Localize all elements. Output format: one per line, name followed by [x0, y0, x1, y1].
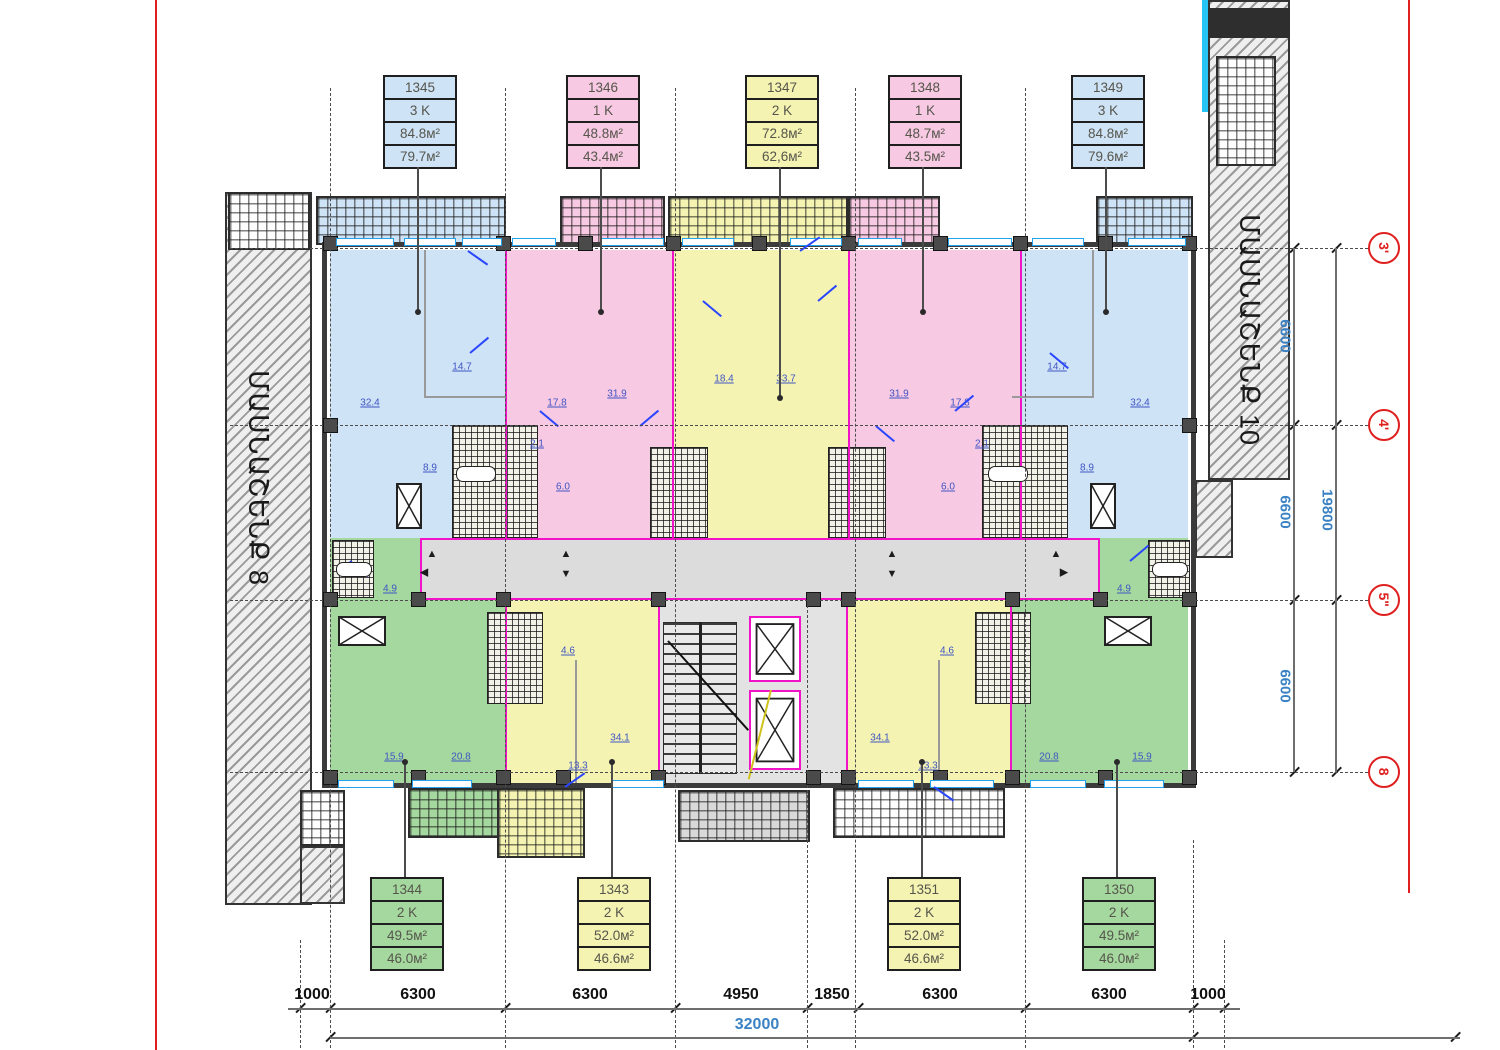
apartment-card-1350: 1350 2 K 49.5м² 46.0м² — [1082, 877, 1156, 971]
leader-dot — [609, 759, 615, 765]
apartment-area-living: 62,6м² — [747, 144, 817, 167]
room-area-label: 4.6 — [940, 646, 954, 657]
axis-line-vertical — [505, 88, 506, 1048]
leader-dot — [919, 759, 925, 765]
bathtub-icon — [988, 466, 1028, 482]
axis-line-vertical — [675, 88, 676, 1048]
dimension-label: 6300 — [400, 986, 436, 1004]
apartment-area-total: 48.8м² — [568, 121, 638, 144]
axis-bubble-5: 5" — [1368, 584, 1400, 616]
axis-line-vertical — [807, 600, 808, 1048]
room-area-label: 4.9 — [1117, 584, 1131, 595]
apartment-area-total: 48.7м² — [890, 121, 960, 144]
apartment-rooms: 1 K — [568, 98, 638, 121]
window — [462, 238, 502, 246]
apartment-card-1349: 1349 3 K 84.8м² 79.6м² — [1071, 75, 1145, 169]
room-area-label: 8.9 — [1080, 463, 1094, 474]
apartment-id: 1347 — [747, 77, 817, 98]
apartment-area-total: 84.8м² — [1073, 121, 1143, 144]
window — [682, 238, 734, 246]
room-area-label: 20.8 — [451, 752, 470, 763]
window — [1030, 780, 1086, 788]
door-swing — [1129, 545, 1149, 562]
apartment-card-1344: 1344 2 K 49.5м² 46.0м² — [370, 877, 444, 971]
window — [1104, 780, 1164, 788]
direction-triangle-icon: ▲ — [427, 548, 438, 560]
dimension-label: 1850 — [814, 986, 850, 1004]
leader-line — [1105, 167, 1107, 312]
room-area-label: 4.6 — [561, 646, 575, 657]
apartment-area-living: 79.6м² — [1073, 144, 1143, 167]
dimension-label: 6600 — [1277, 319, 1294, 352]
dimension-label: 1000 — [294, 986, 330, 1004]
apartment-rooms: 2 K — [889, 900, 959, 923]
room-area-label: 13.3 — [568, 761, 587, 772]
floor-plan-drawing: 32.414.78.92.16.017.831.918.433.731.917.… — [0, 0, 1500, 1050]
axis-bubble-3: 3' — [1368, 232, 1400, 264]
dimension-total-label: 19800 — [1319, 489, 1336, 531]
axis-line-horizontal — [230, 600, 1368, 601]
vent-shaft-x-icon — [396, 483, 422, 529]
leader-dot — [1114, 759, 1120, 765]
room-area-label: 6.0 — [941, 482, 955, 493]
axis-label: 3' — [1376, 242, 1392, 253]
apartment-area-total: 49.5м² — [1084, 923, 1154, 946]
apartment-rooms: 2 K — [372, 900, 442, 923]
axis-bubble-4: 4' — [1368, 409, 1400, 441]
window — [612, 780, 664, 788]
room-area-label: 2.1 — [530, 439, 544, 450]
apartment-area-living: 79.7м² — [385, 144, 455, 167]
window — [1032, 238, 1084, 246]
window — [404, 238, 456, 246]
room-area-label: 6.0 — [556, 482, 570, 493]
apartment-area-living: 46.6м² — [579, 946, 649, 969]
apartment-rooms: 1 K — [890, 98, 960, 121]
direction-triangle-icon: ▼ — [561, 568, 572, 580]
door-swing — [817, 285, 837, 302]
dimension-label: 6600 — [1277, 495, 1294, 528]
vent-shaft-x-icon — [1090, 483, 1116, 529]
axis-line-vertical — [330, 88, 331, 1048]
window — [600, 238, 664, 246]
room-area-label: 15.9 — [384, 752, 403, 763]
vent-shaft-x-icon — [338, 616, 386, 646]
leader-dot — [415, 309, 421, 315]
direction-triangle-icon: ▶ — [1060, 566, 1068, 579]
direction-triangle-icon: ▲ — [561, 548, 572, 560]
axis-bubble-8: 8 — [1368, 756, 1400, 788]
axis-line-horizontal — [230, 248, 1368, 249]
apartment-area-total: 52.0м² — [889, 923, 959, 946]
door-swing — [702, 300, 722, 317]
window — [1128, 238, 1186, 246]
apartment-id: 1346 — [568, 77, 638, 98]
leader-line — [779, 167, 781, 398]
dimension-line-bottom-total — [330, 1037, 1460, 1039]
vent-shaft-x-icon — [1104, 616, 1152, 646]
window — [336, 238, 394, 246]
leader-dot — [402, 759, 408, 765]
apartment-area-total: 52.0м² — [579, 923, 649, 946]
room-area-label: 31.9 — [607, 389, 626, 400]
apartment-card-1348: 1348 1 K 48.7м² 43.5м² — [888, 75, 962, 169]
dimension-label: 6300 — [572, 986, 608, 1004]
room-area-label: 32.4 — [360, 398, 379, 409]
leader-line — [921, 762, 923, 877]
apartment-area-living: 46.6м² — [889, 946, 959, 969]
apartment-card-1351: 1351 2 K 52.0м² 46.6м² — [887, 877, 961, 971]
building-label-left: ՄԱՍՆԱՇԵՆՔ 8 — [243, 370, 274, 586]
dimension-label: 4950 — [723, 986, 759, 1004]
window — [930, 780, 994, 788]
apartment-rooms: 3 K — [1073, 98, 1143, 121]
window — [858, 780, 914, 788]
apartment-id: 1349 — [1073, 77, 1143, 98]
apartment-id: 1344 — [372, 879, 442, 900]
apartment-rooms: 3 K — [385, 98, 455, 121]
apartment-card-1343: 1343 2 K 52.0м² 46.6м² — [577, 877, 651, 971]
room-area-label: 2.1 — [975, 439, 989, 450]
direction-triangle-icon: ◀ — [420, 566, 428, 579]
apartment-rooms: 2 K — [747, 98, 817, 121]
room-area-label: 15.9 — [1132, 752, 1151, 763]
window — [948, 238, 1012, 246]
apartment-area-living: 43.5м² — [890, 144, 960, 167]
axis-line-vertical — [1193, 840, 1194, 1048]
door-swing — [467, 250, 488, 265]
leader-line — [611, 762, 613, 877]
apartment-card-1345: 1345 3 K 84.8м² 79.7м² — [383, 75, 457, 169]
door-swing — [875, 425, 895, 442]
room-area-label: 8.9 — [423, 463, 437, 474]
apartment-id: 1343 — [579, 879, 649, 900]
bathtub-icon — [336, 562, 372, 577]
apartment-id: 1350 — [1084, 879, 1154, 900]
dimension-label: 6300 — [922, 986, 958, 1004]
room-area-label: 34.1 — [610, 733, 629, 744]
leader-line — [1116, 762, 1118, 877]
apartment-area-living: 46.0м² — [372, 946, 442, 969]
axis-line-vertical — [1025, 88, 1026, 1048]
room-area-label: 14.7 — [452, 362, 471, 373]
leader-dot — [1103, 309, 1109, 315]
axis-label: 4' — [1376, 419, 1392, 430]
room-area-label: 4.9 — [383, 584, 397, 595]
room-area-label: 20.8 — [1039, 752, 1058, 763]
leader-dot — [920, 309, 926, 315]
door-swing — [469, 337, 489, 354]
axis-line-vertical — [855, 88, 856, 1048]
room-area-label: 18.4 — [714, 374, 733, 385]
axis-label: 5" — [1376, 592, 1392, 606]
room-area-label: 31.9 — [889, 389, 908, 400]
building-label-right: ՄԱՍՆԱՇԵՆՔ 10 — [1234, 214, 1265, 446]
apartment-card-1346: 1346 1 K 48.8м² 43.4м² — [566, 75, 640, 169]
apartment-area-living: 46.0м² — [1084, 946, 1154, 969]
door-swing — [933, 786, 954, 801]
dimension-line-bottom — [288, 1008, 1240, 1010]
axis-line-horizontal — [230, 772, 1368, 773]
room-area-label: 34.1 — [870, 733, 889, 744]
axis-label: 8 — [1376, 768, 1392, 776]
direction-triangle-icon: ▲ — [887, 548, 898, 560]
axis-line-horizontal — [230, 425, 1368, 426]
apartment-area-total: 49.5м² — [372, 923, 442, 946]
window — [412, 780, 472, 788]
dimension-label: 1000 — [1190, 986, 1226, 1004]
direction-triangle-icon: ▼ — [887, 568, 898, 580]
window — [338, 780, 394, 788]
window — [512, 238, 556, 246]
room-area-label: 32.4 — [1130, 398, 1149, 409]
room-area-label: 17.8 — [547, 398, 566, 409]
leader-dot — [598, 309, 604, 315]
leader-line — [404, 762, 406, 877]
apartment-area-total: 84.8м² — [385, 121, 455, 144]
dimension-label: 6600 — [1277, 669, 1294, 702]
leader-line — [600, 167, 602, 312]
leader-dot — [777, 395, 783, 401]
window — [858, 238, 902, 246]
bathtub-icon — [1152, 562, 1188, 577]
bathtub-icon — [456, 466, 496, 482]
apartment-id: 1351 — [889, 879, 959, 900]
apartment-area-living: 43.4м² — [568, 144, 638, 167]
apartment-id: 1345 — [385, 77, 455, 98]
apartment-area-total: 72.8м² — [747, 121, 817, 144]
apartment-rooms: 2 K — [579, 900, 649, 923]
apartment-rooms: 2 K — [1084, 900, 1154, 923]
dimension-label: 6300 — [1091, 986, 1127, 1004]
dimension-total-label: 32000 — [735, 1016, 780, 1034]
direction-triangle-icon: ▲ — [1051, 548, 1062, 560]
apartment-card-1347: 1347 2 K 72.8м² 62,6м² — [745, 75, 819, 169]
leader-line — [922, 167, 924, 312]
leader-line — [417, 167, 419, 312]
apartment-id: 1348 — [890, 77, 960, 98]
